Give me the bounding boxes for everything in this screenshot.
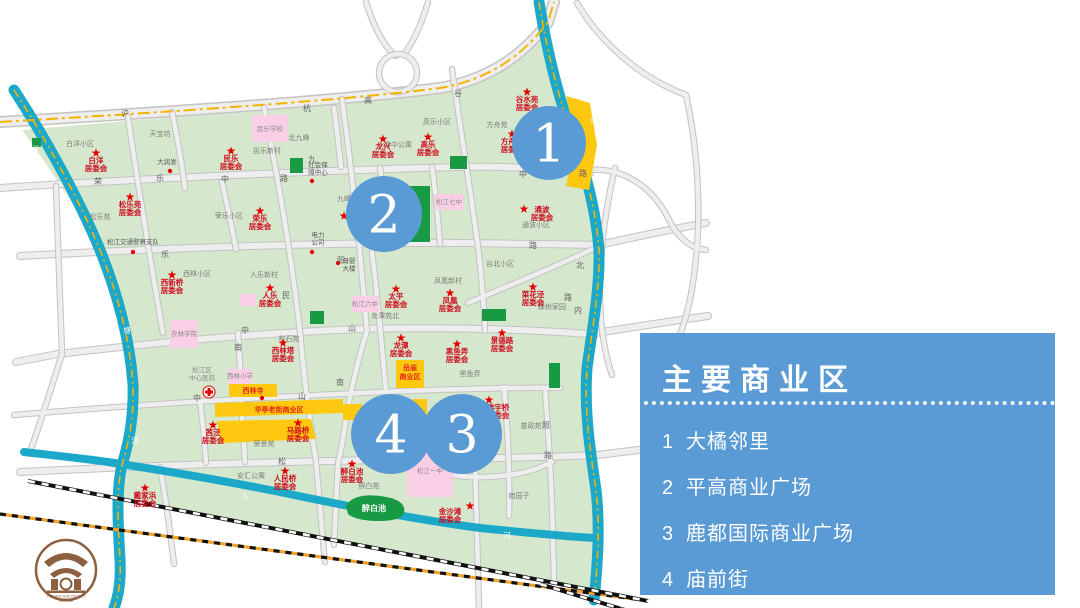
school-label: 民乐学校 (257, 124, 284, 133)
hospital-cross-v (208, 388, 211, 396)
committee-label: 居委会 (341, 474, 364, 484)
road-name-char: 照 (542, 421, 550, 430)
area-label: 高乐小区 (423, 117, 451, 126)
map-marker-2: 2 (346, 176, 422, 252)
committee-label: 居委会 (272, 353, 295, 363)
road-name-char: 谷 (454, 89, 462, 98)
legend-item-number: 4 (662, 569, 678, 592)
river-stub (24, 452, 108, 462)
pond-label: 醉白池 (362, 503, 386, 513)
river-name-char: 河 (100, 411, 108, 420)
road-name-char: 路 (529, 240, 537, 250)
legend-item-label: 鹿都国际商业广场 (686, 523, 854, 545)
road (577, 3, 686, 95)
commercial-label: 华亭老街商业区 (255, 405, 304, 414)
road-name-char: 南 (234, 342, 242, 352)
park-block (290, 158, 303, 173)
committee-label: 居委会 (85, 163, 108, 173)
committee-label: 居委会 (287, 433, 310, 443)
legend-item-3: 3鹿都国际商业广场 (662, 517, 1033, 546)
poi-label: 电力 (312, 230, 325, 239)
poi-dot (168, 169, 172, 173)
committee-label: 居委会 (372, 149, 395, 159)
area-label: 民乐新村 (253, 146, 281, 155)
road-name-char: 路 (280, 173, 288, 183)
road-fill (30, 354, 62, 452)
road-fill (589, 316, 708, 334)
area-label: 荣景苑 (254, 439, 275, 448)
road-name-char: 山 (348, 323, 356, 333)
road-name-char: 路 (564, 292, 572, 302)
committee-label: 居委会 (446, 354, 469, 364)
committee-label: 居委会 (522, 297, 545, 307)
legend-panel: 主要商业区 1大橘邻里 2平高商业广场 3鹿都国际商业广场 4庙前街 (640, 333, 1055, 595)
river-name-char: 泾 (131, 436, 139, 445)
committee-label: 居委会 (385, 299, 408, 309)
marker-number: 4 (374, 406, 407, 466)
road-name-char: 乐 (156, 173, 164, 183)
area-label: 安汇公寓 (237, 471, 265, 480)
road-name-char: 中 (221, 174, 229, 184)
area-label: 天宝坊 (150, 129, 171, 138)
area-label: 凤凰新村 (434, 276, 462, 285)
school-label: 西林小学 (227, 371, 254, 380)
road-name-char: 杭 (303, 103, 311, 113)
committee-label: 居委会 (439, 514, 462, 524)
poi-dot (310, 179, 314, 183)
marker-number: 1 (532, 115, 565, 175)
road-name-char: 沪 (121, 108, 129, 118)
legend-item-2: 2平高商业广场 (662, 471, 1033, 500)
slide: 民乐学校松江七中松江六中农林学院西林小学松江一中岳庙商业区西林寺华亭老街商业区醉… (0, 0, 1080, 608)
road-name-char: 阳 (337, 256, 345, 265)
area-label: 南园子 (509, 491, 530, 500)
road-name-char: 中 (193, 393, 201, 403)
commercial-label: 商业区 (400, 372, 421, 381)
road-name-char: 路 (544, 450, 552, 460)
area-label: 龙潭苑北 (371, 311, 399, 320)
committee-label: 居委会 (259, 298, 282, 308)
legend-item-4: 4庙前街 (662, 563, 1033, 592)
road-name-char: 内 (574, 305, 582, 315)
poi-dot (260, 396, 264, 400)
road-name-char: 路 (579, 168, 587, 178)
committee-label: 居委会 (274, 481, 297, 491)
area-label: 北九峰 (289, 133, 310, 142)
legend-item-number: 3 (662, 523, 678, 546)
poi-label: 松江交通警察支队 (107, 237, 160, 246)
river-name-char: 沙 (32, 144, 40, 153)
district-logo: YUEYANG SUB-DISTRICT 岳阳·街道 (36, 540, 96, 603)
interchange-loop-fill (379, 54, 417, 92)
road-name-char: 荣 (94, 176, 102, 186)
area-label: 白洋小区 (66, 139, 94, 148)
committee-label: 居委会 (134, 498, 157, 508)
poi-label: 大润发 (157, 157, 177, 166)
road-name-char: 中 (241, 325, 249, 335)
map-marker-3: 3 (422, 394, 502, 474)
school-label: 松江一中 (417, 466, 443, 475)
park-block (450, 156, 467, 169)
area-label: 人乐新村 (250, 270, 278, 279)
road-name-char: 乐 (161, 249, 169, 259)
school-block (240, 294, 256, 306)
road-fill (577, 3, 686, 95)
map-marker-4: 4 (351, 394, 431, 474)
area-label: 黑鱼弄 (460, 369, 481, 378)
road-name-char: 北 (576, 261, 584, 270)
committee-label: 居委会 (439, 303, 462, 313)
road-name-char: 高 (364, 95, 372, 105)
hospital-label: 松江区 (192, 365, 212, 374)
logo-text-cn: 岳阳·街道 (59, 598, 74, 603)
committee-label: 居委会 (491, 343, 514, 353)
map-marker-1: 1 (512, 106, 586, 180)
park-block (549, 363, 560, 388)
river-name-char: 通 (590, 115, 598, 125)
area-label: 谷北小区 (486, 259, 514, 268)
logo-base (47, 591, 85, 594)
park-block (310, 311, 324, 324)
marker-number: 3 (445, 406, 478, 466)
road-name-char: 山 (298, 391, 306, 401)
road-name-char: 南 (336, 377, 344, 387)
commercial-label: 西林寺 (243, 386, 264, 395)
logo-pillar-right (74, 579, 81, 590)
area-label: 方舟苑 (487, 120, 508, 129)
committee-label: 居委会 (220, 161, 243, 171)
area-label: 西林小区 (183, 269, 211, 278)
legend-item-label: 大橘邻里 (686, 431, 770, 453)
poi-label: 障中心 (308, 168, 328, 177)
legend-item-number: 2 (662, 477, 678, 500)
road-name-char: 民 (282, 291, 290, 300)
committee-label: 居委会 (202, 435, 225, 445)
legend-item-number: 1 (662, 431, 678, 454)
area-label: 普政苑 (521, 421, 542, 430)
committee-label: 居委会 (161, 285, 184, 295)
school-label: 农林学院 (171, 329, 198, 338)
legend-divider (628, 401, 1055, 405)
school-label: 松江六中 (352, 299, 378, 308)
legend-item-label: 平高商业广场 (686, 477, 812, 499)
committee-label: 居委会 (531, 212, 554, 222)
poi-dot (131, 250, 135, 254)
legend-title: 主要商业区 (662, 355, 1033, 399)
commercial-label: 岳庙 (403, 363, 417, 372)
river-name-char: 河 (503, 531, 511, 540)
committee-label: 居委会 (417, 147, 440, 157)
marker-number: 2 (367, 186, 400, 246)
logo-pillar-left (51, 579, 58, 590)
area-label: 松乐苑 (90, 212, 111, 221)
road-name-char: 松 (278, 456, 286, 466)
river-name-char: 市 (82, 411, 90, 421)
river-name-char: 人 (241, 492, 249, 501)
river-name-char: 塘 (123, 325, 131, 335)
road-name-char: 九 (308, 155, 316, 164)
committee-label: 居委会 (119, 207, 142, 217)
poi-label: 公司 (312, 239, 325, 247)
hospital-label: 中心医院 (189, 373, 216, 382)
committee-label: 居委会 (390, 348, 413, 358)
committee-label: 居委会 (249, 221, 272, 231)
park-block (482, 309, 506, 321)
legend-items: 1大橘邻里 2平高商业广场 3鹿都国际商业广场 4庙前街 (662, 425, 1033, 592)
area-label: 荣乐小区 (215, 211, 243, 220)
legend-item-1: 1大橘邻里 (662, 425, 1033, 454)
road-fill (56, 186, 62, 354)
poi-dot (310, 250, 314, 254)
school-label: 松江七中 (436, 197, 462, 206)
legend-item-label: 庙前街 (686, 569, 749, 591)
